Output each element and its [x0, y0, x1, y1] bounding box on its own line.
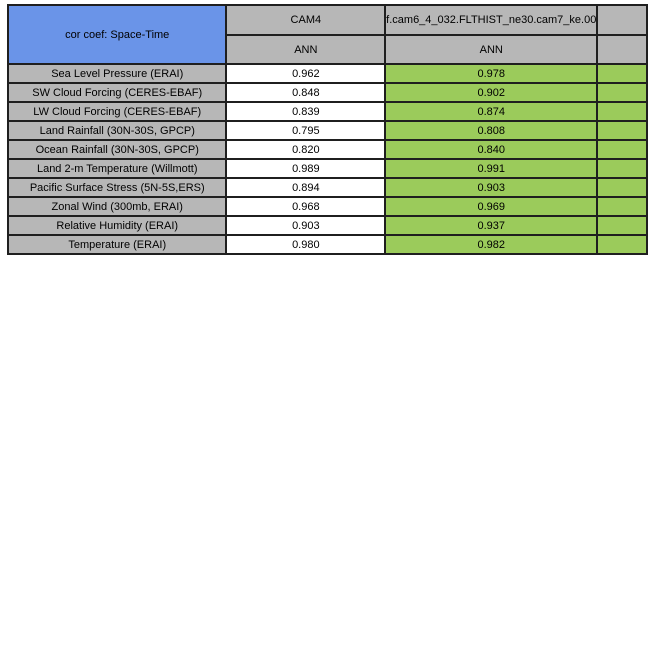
extra-value	[597, 64, 647, 83]
test-value: 0.978	[385, 64, 597, 83]
test-value: 0.937	[385, 216, 597, 235]
col-header-extra	[597, 5, 647, 35]
cor-coef-table: cor coef: Space-Time CAM4 f.cam6_4_032.F…	[7, 4, 648, 255]
row-label: Land 2-m Temperature (Willmott)	[8, 159, 226, 178]
extra-value	[597, 159, 647, 178]
row-label: LW Cloud Forcing (CERES-EBAF)	[8, 102, 226, 121]
extra-value	[597, 83, 647, 102]
season-header-extra	[597, 35, 647, 64]
cam4-value: 0.848	[226, 83, 385, 102]
cam4-value: 0.968	[226, 197, 385, 216]
test-value: 0.902	[385, 83, 597, 102]
row-label: Temperature (ERAI)	[8, 235, 226, 254]
row-label: Sea Level Pressure (ERAI)	[8, 64, 226, 83]
test-value: 0.874	[385, 102, 597, 121]
season-header-2: ANN	[385, 35, 597, 64]
test-value: 0.969	[385, 197, 597, 216]
table-title: cor coef: Space-Time	[8, 5, 226, 64]
cam4-value: 0.980	[226, 235, 385, 254]
table-row: Relative Humidity (ERAI) 0.903 0.937	[8, 216, 647, 235]
cam4-value: 0.989	[226, 159, 385, 178]
table-row: LW Cloud Forcing (CERES-EBAF) 0.839 0.87…	[8, 102, 647, 121]
col-header-model-2-cell: f.cam6_4_032.FLTHIST_ne30.cam7_ke.00	[385, 5, 597, 35]
extra-value	[597, 121, 647, 140]
extra-value	[597, 102, 647, 121]
season-header-1: ANN	[226, 35, 385, 64]
cam4-value: 0.894	[226, 178, 385, 197]
test-value: 0.982	[385, 235, 597, 254]
test-value: 0.808	[385, 121, 597, 140]
cam4-value: 0.962	[226, 64, 385, 83]
extra-value	[597, 235, 647, 254]
table-row: Sea Level Pressure (ERAI) 0.962 0.978	[8, 64, 647, 83]
col-header-model-2: f.cam6_4_032.FLTHIST_ne30.cam7_ke.00	[386, 6, 596, 34]
col-header-model-1: CAM4	[226, 5, 385, 35]
extra-value	[597, 216, 647, 235]
row-label: Pacific Surface Stress (5N-5S,ERS)	[8, 178, 226, 197]
table-row: SW Cloud Forcing (CERES-EBAF) 0.848 0.90…	[8, 83, 647, 102]
header-row-models: cor coef: Space-Time CAM4 f.cam6_4_032.F…	[8, 5, 647, 35]
page: cor coef: Space-Time CAM4 f.cam6_4_032.F…	[0, 0, 648, 647]
row-label: Ocean Rainfall (30N-30S, GPCP)	[8, 140, 226, 159]
test-value: 0.903	[385, 178, 597, 197]
row-label: SW Cloud Forcing (CERES-EBAF)	[8, 83, 226, 102]
table-row: Land 2-m Temperature (Willmott) 0.989 0.…	[8, 159, 647, 178]
extra-value	[597, 197, 647, 216]
test-value: 0.840	[385, 140, 597, 159]
cam4-value: 0.820	[226, 140, 385, 159]
row-label: Land Rainfall (30N-30S, GPCP)	[8, 121, 226, 140]
cam4-value: 0.903	[226, 216, 385, 235]
cam4-value: 0.795	[226, 121, 385, 140]
cam4-value: 0.839	[226, 102, 385, 121]
test-value: 0.991	[385, 159, 597, 178]
extra-value	[597, 178, 647, 197]
row-label: Relative Humidity (ERAI)	[8, 216, 226, 235]
table-row: Land Rainfall (30N-30S, GPCP) 0.795 0.80…	[8, 121, 647, 140]
table-row: Temperature (ERAI) 0.980 0.982	[8, 235, 647, 254]
row-label: Zonal Wind (300mb, ERAI)	[8, 197, 226, 216]
extra-value	[597, 140, 647, 159]
table-row: Zonal Wind (300mb, ERAI) 0.968 0.969	[8, 197, 647, 216]
table-row: Ocean Rainfall (30N-30S, GPCP) 0.820 0.8…	[8, 140, 647, 159]
table-row: Pacific Surface Stress (5N-5S,ERS) 0.894…	[8, 178, 647, 197]
